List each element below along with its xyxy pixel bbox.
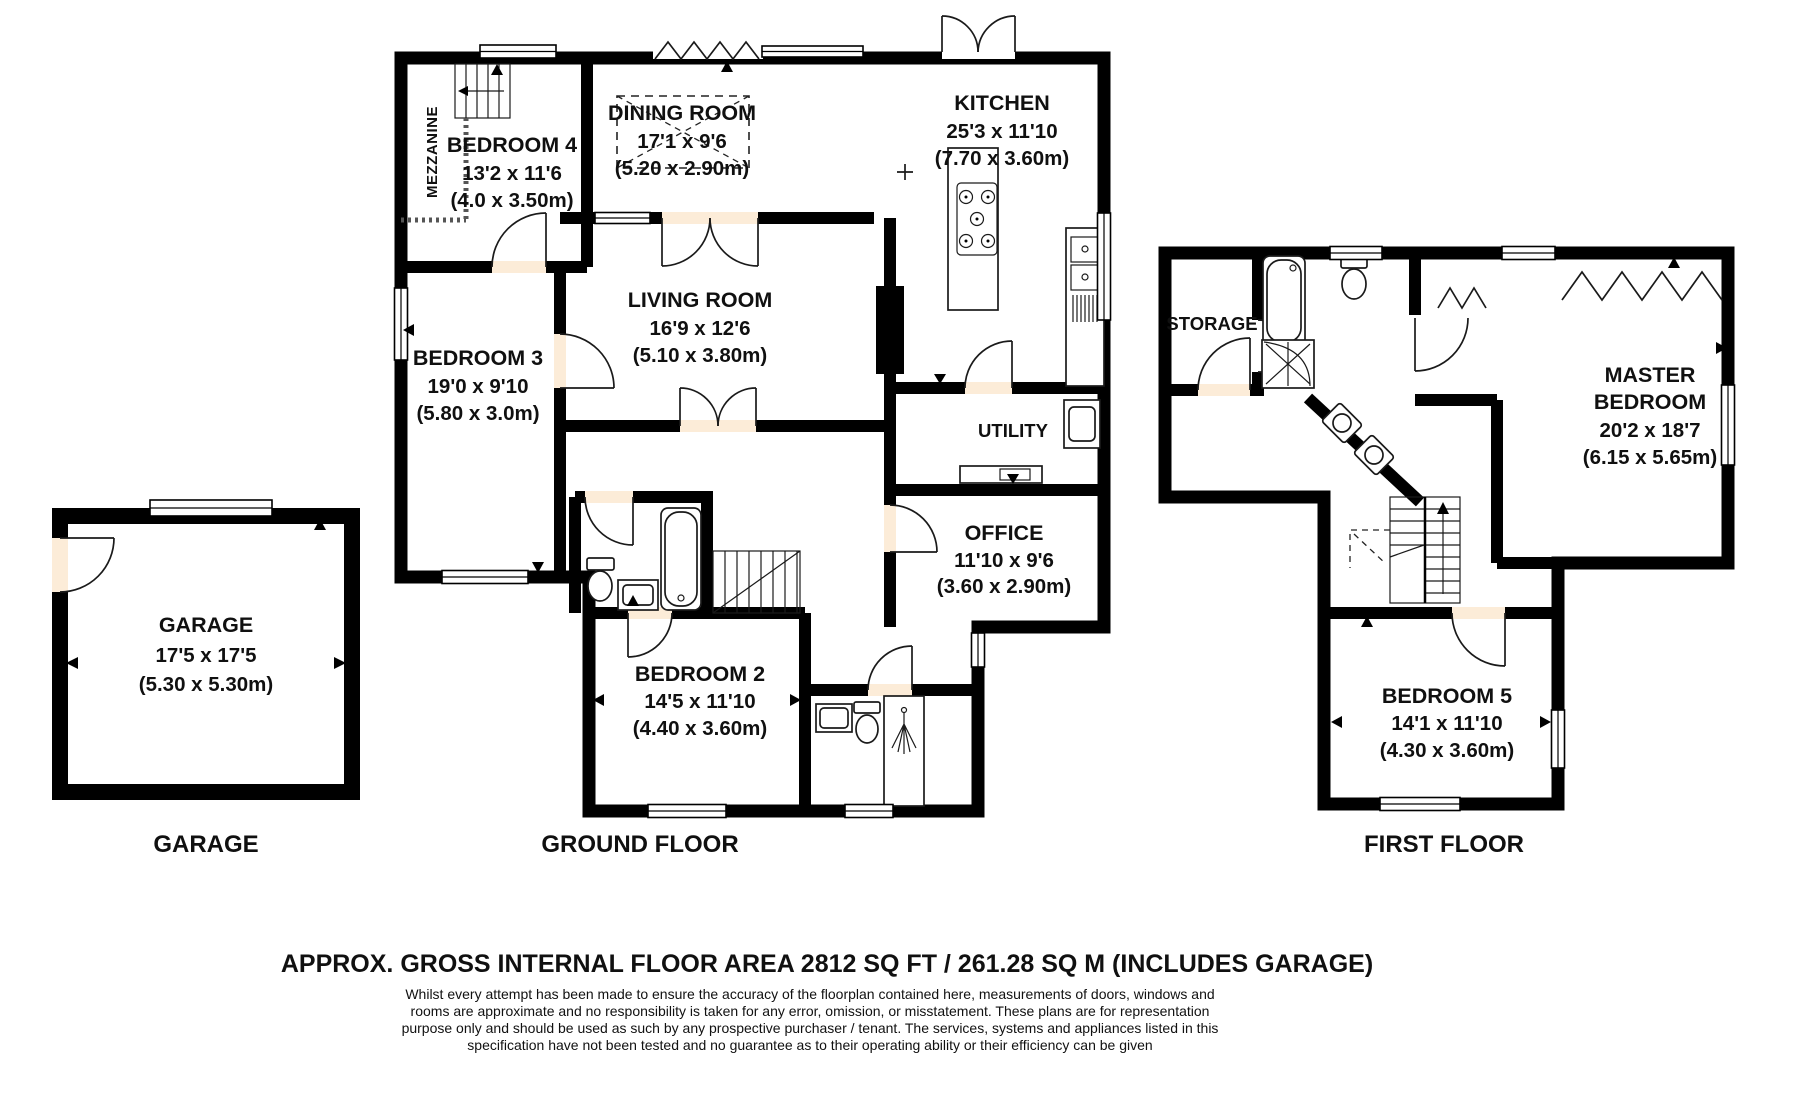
- room-dim-bedroom2-metric: (4.40 x 3.60m): [633, 717, 767, 740]
- shower-icon: [884, 696, 924, 806]
- measure-cross-icon: [897, 164, 913, 180]
- room-dim-kitchen-metric: (7.70 x 3.60m): [935, 147, 1069, 170]
- room-dim-master: 20'2 x 18'7: [1600, 419, 1701, 442]
- room-dim-bedroom4-metric: (4.0 x 3.50m): [450, 189, 573, 212]
- room-dim-office: 11'10 x 9'6: [954, 549, 1054, 572]
- measure-arrow: [491, 64, 503, 75]
- room-label-master-1: MASTER: [1605, 363, 1696, 387]
- room-label-bedroom2: BEDROOM 2: [635, 662, 765, 686]
- door-arc: [628, 613, 672, 657]
- window: [1722, 385, 1735, 465]
- window: [150, 500, 272, 516]
- door-arc: [1452, 613, 1505, 666]
- door-gap: [868, 684, 912, 696]
- door-gap: [1198, 384, 1250, 396]
- bath-icon: [661, 508, 701, 610]
- window: [972, 633, 985, 667]
- floor-area-title: APPROX. GROSS INTERNAL FLOOR AREA 2812 S…: [281, 950, 1373, 978]
- room-dim-bedroom5: 14'1 x 11'10: [1391, 712, 1502, 735]
- stairs-icon: [1350, 497, 1460, 603]
- room-label-dining: DINING ROOM: [608, 101, 756, 125]
- door-gap: [554, 334, 566, 388]
- room-label-bedroom3: BEDROOM 3: [413, 346, 543, 370]
- door-gap: [492, 261, 546, 273]
- garage-plan: GARAGE 17'5 x 17'5 (5.30 x 5.30m): [52, 500, 352, 792]
- garage-door-gap: [52, 538, 68, 592]
- room-label-garage: GARAGE: [159, 613, 253, 637]
- measure-arrow: [1331, 716, 1342, 728]
- window: [480, 45, 556, 58]
- room-label-master-2: BEDROOM: [1594, 390, 1706, 414]
- room-label-living: LIVING ROOM: [628, 288, 773, 312]
- disclaimer-line: specification have not been tested and n…: [467, 1037, 1152, 1053]
- room-label-utility: UTILITY: [978, 420, 1049, 441]
- room-label-bedroom4: BEDROOM 4: [447, 133, 577, 157]
- utility-sink-icon: [1064, 400, 1100, 448]
- double-door-arc: [662, 218, 758, 266]
- floor-caption-garage: GARAGE: [153, 831, 258, 858]
- measure-arrow: [1540, 716, 1551, 728]
- room-label-mezzanine: MEZZANINE: [424, 106, 441, 198]
- room-dim-kitchen: 25'3 x 11'10: [946, 120, 1057, 143]
- door-gap: [585, 491, 633, 503]
- interior-walls: [1165, 253, 1558, 613]
- room-dim-living-metric: (5.10 x 3.80m): [633, 344, 767, 367]
- room-dim-bedroom2: 14'5 x 11'10: [644, 690, 755, 713]
- window: [595, 213, 650, 224]
- door-arc: [492, 213, 546, 267]
- kitchen-island: [948, 148, 998, 310]
- sink-icon: [816, 704, 852, 732]
- toilet-icon: [587, 558, 614, 601]
- room-label-office: OFFICE: [965, 521, 1044, 545]
- door-arc: [1198, 338, 1250, 390]
- window: [1380, 798, 1460, 811]
- room-dim-bedroom5-metric: (4.30 x 3.60m): [1380, 739, 1514, 762]
- window: [845, 805, 893, 818]
- floor-caption-ground: GROUND FLOOR: [541, 831, 738, 858]
- door-gap: [884, 505, 896, 552]
- shower-icon: [1262, 340, 1314, 388]
- floor-caption-first: FIRST FLOOR: [1364, 831, 1524, 858]
- door-arc: [965, 341, 1012, 388]
- window: [1552, 710, 1565, 768]
- window: [762, 46, 863, 57]
- door-gap: [1452, 607, 1505, 619]
- door-arc: [585, 497, 633, 545]
- room-dim-bedroom3: 19'0 x 9'10: [428, 375, 529, 398]
- floorplan-svg: GARAGE 17'5 x 17'5 (5.30 x 5.30m): [0, 0, 1800, 1098]
- utility-counter: [960, 466, 1042, 483]
- ground-floor-plan: MEZZANINE BEDROOM 4 13'2 x 11'6 (4.0 x 3…: [395, 16, 1111, 818]
- door-arc: [868, 646, 912, 690]
- window: [442, 571, 528, 584]
- door-arc: [60, 538, 114, 592]
- toilet-icon: [1341, 256, 1367, 299]
- room-dim-master-metric: (6.15 x 5.65m): [1583, 446, 1717, 469]
- room-dim-garage: 17'5 x 17'5: [156, 644, 257, 667]
- room-dim-office-metric: (3.60 x 2.90m): [937, 575, 1071, 598]
- door-arc: [890, 505, 937, 552]
- first-floor-plan: STORAGE MASTER BEDROOM 20'2 x 18'7 (6.15…: [1165, 247, 1735, 811]
- stairs-icon: [713, 551, 800, 613]
- room-dim-bedroom3-metric: (5.80 x 3.0m): [416, 402, 539, 425]
- disclaimer-line: rooms are approximate and no responsibil…: [411, 1003, 1210, 1019]
- window: [648, 805, 726, 818]
- toilet-icon: [854, 702, 880, 743]
- bath-icon: [1263, 256, 1305, 346]
- room-label-storage: STORAGE: [1166, 313, 1257, 334]
- disclaimer-line: Whilst every attempt has been made to en…: [405, 986, 1214, 1002]
- window: [1502, 247, 1555, 260]
- disclaimer-line: purpose only and should be used as such …: [402, 1020, 1219, 1036]
- room-label-kitchen: KITCHEN: [954, 91, 1050, 115]
- room-dim-garage-metric: (5.30 x 5.30m): [139, 673, 273, 696]
- room-dim-dining: 17'1 x 9'6: [637, 130, 727, 153]
- window: [395, 288, 408, 360]
- floorplan-page: GARAGE 17'5 x 17'5 (5.30 x 5.30m): [0, 0, 1800, 1098]
- door-arc: [560, 334, 614, 388]
- room-dim-dining-metric: (5.20 x 2.90m): [615, 157, 749, 180]
- room-dim-bedroom4: 13'2 x 11'6: [462, 162, 562, 185]
- chimney-breast: [876, 286, 904, 374]
- door-arc: [1415, 318, 1468, 371]
- window: [1330, 247, 1382, 260]
- wardrobe-icon: [1438, 288, 1486, 308]
- wardrobe-icon: [1562, 272, 1722, 300]
- window: [1098, 213, 1111, 320]
- room-label-bedroom5: BEDROOM 5: [1382, 684, 1512, 708]
- door-gap: [965, 382, 1012, 394]
- room-dim-living: 16'9 x 12'6: [650, 317, 751, 340]
